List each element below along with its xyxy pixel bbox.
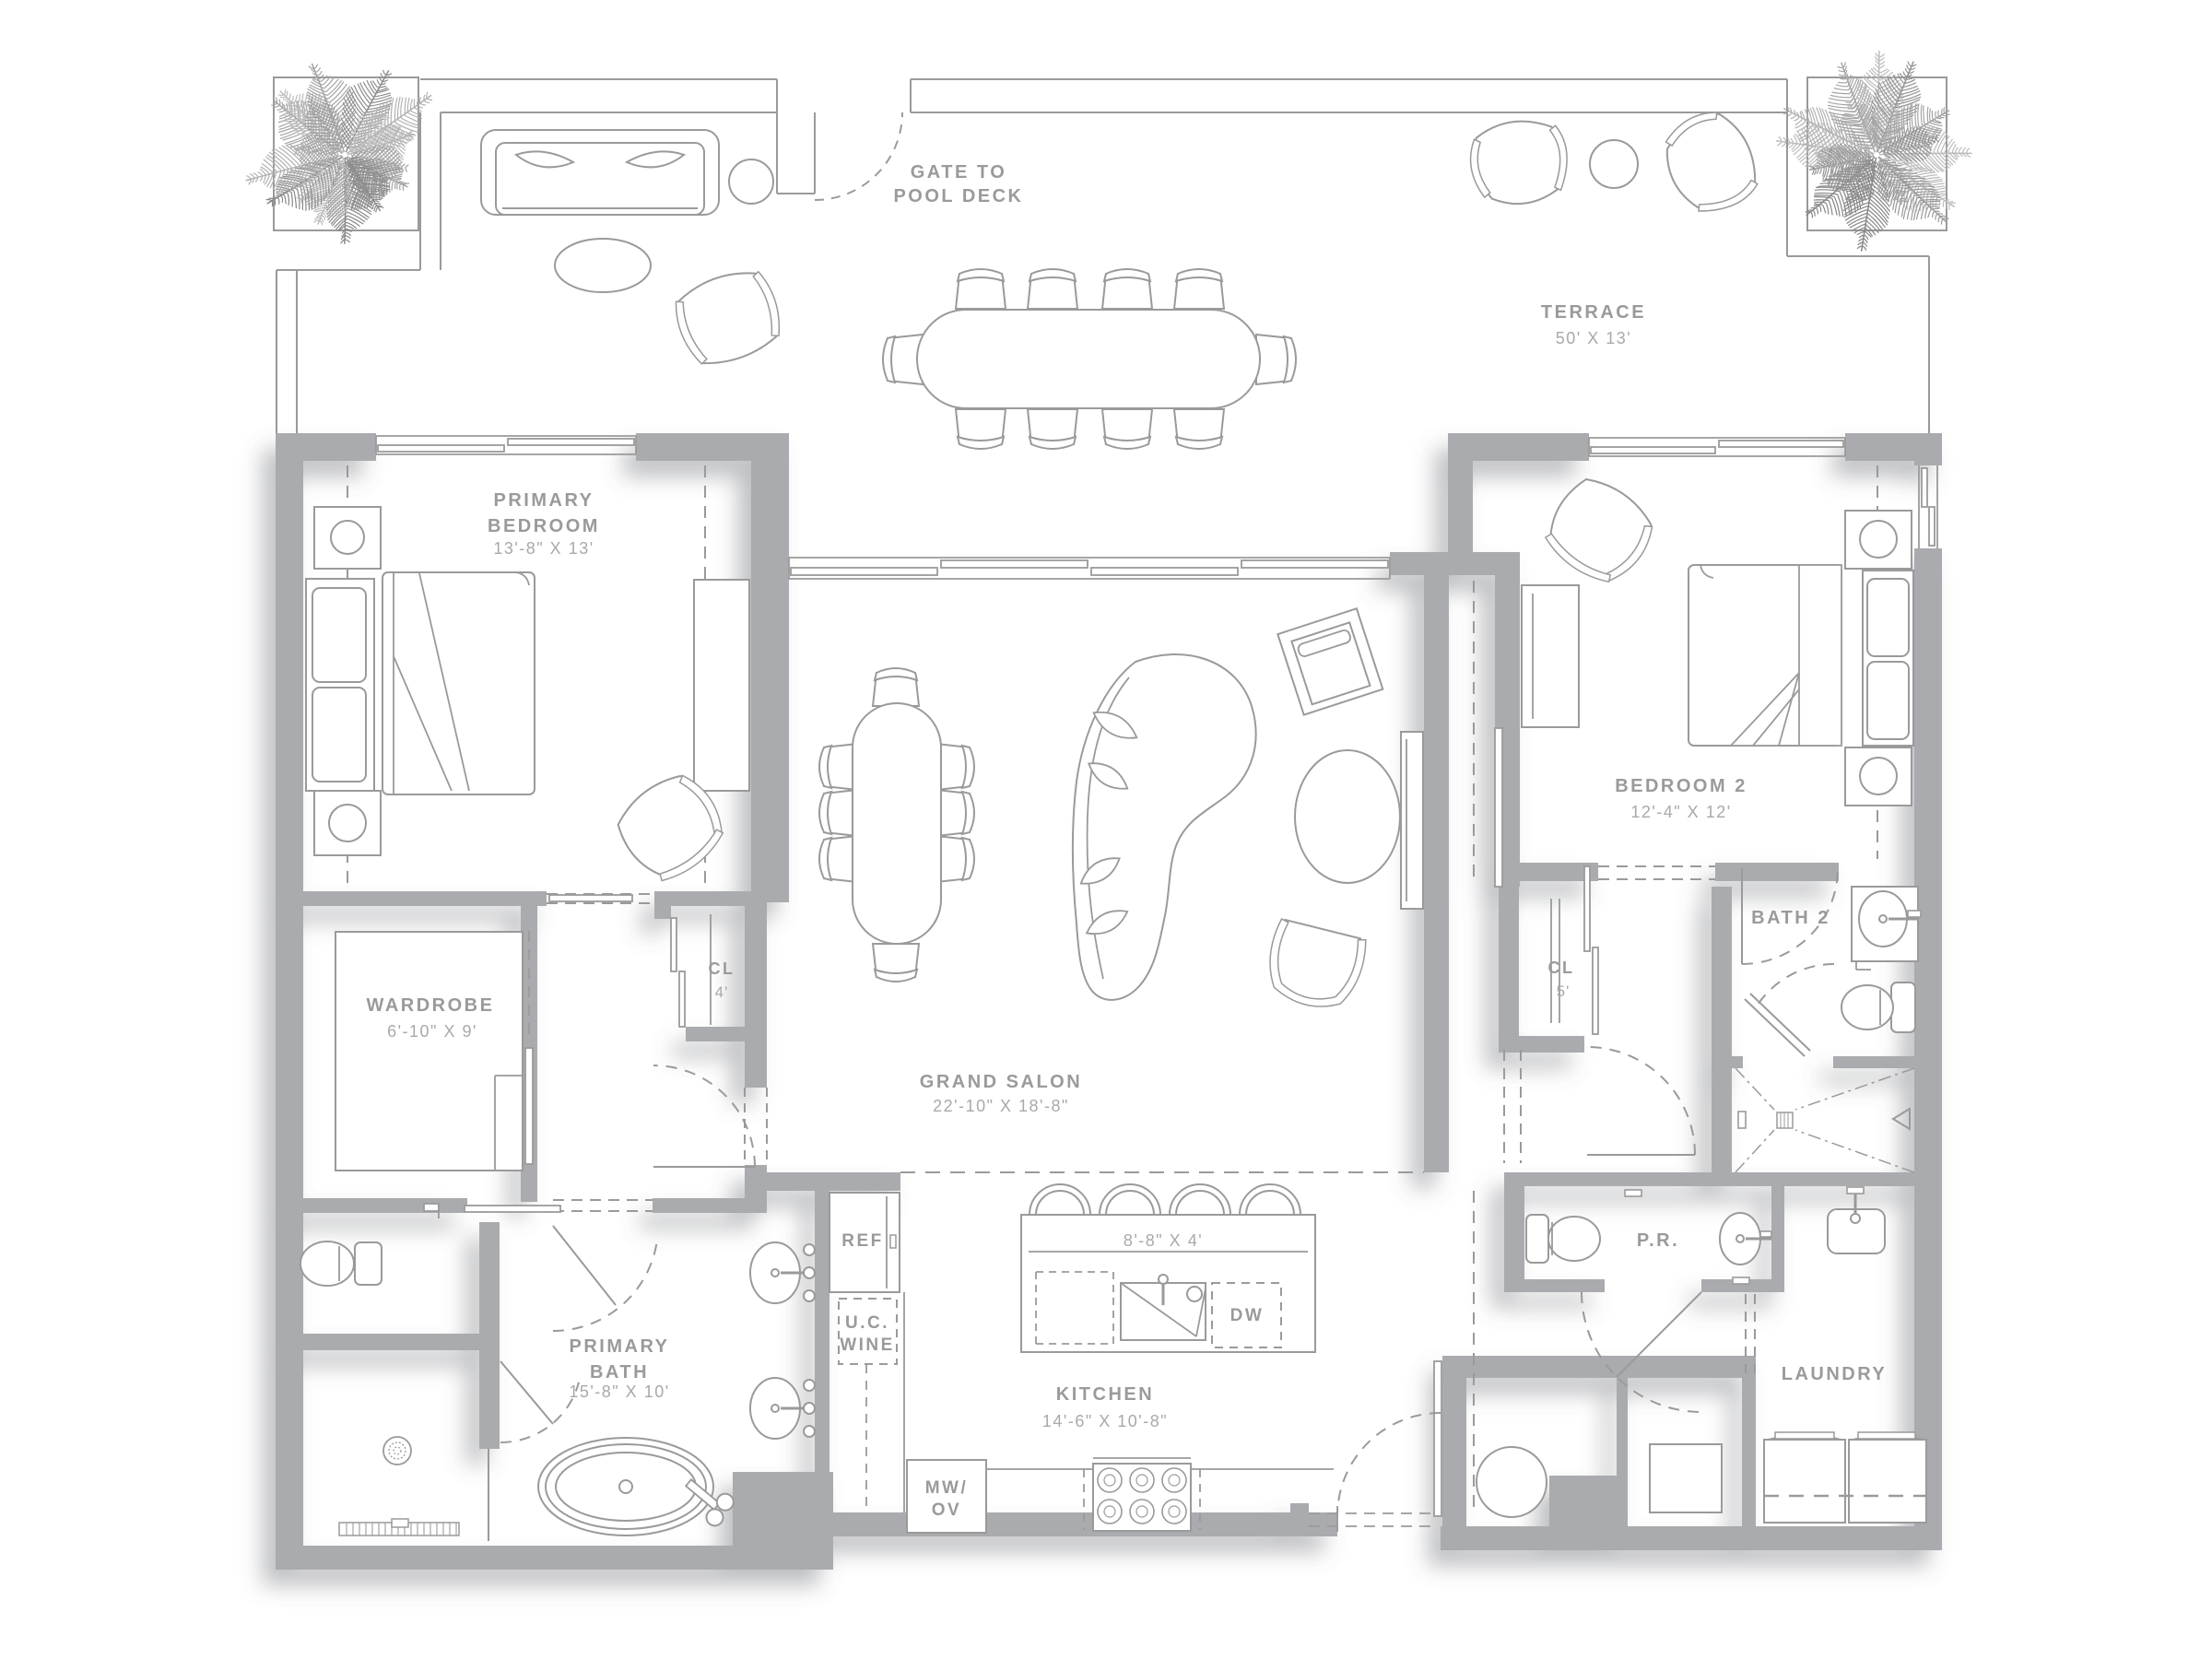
svg-text:BATH 2: BATH 2 bbox=[1751, 908, 1830, 928]
svg-text:50' X 13': 50' X 13' bbox=[1556, 329, 1631, 347]
svg-text:TERRACE: TERRACE bbox=[1541, 302, 1646, 323]
svg-text:OV: OV bbox=[932, 1500, 961, 1520]
svg-text:PRIMARY: PRIMARY bbox=[570, 1336, 670, 1357]
svg-text:14'-6" X 10'-8": 14'-6" X 10'-8" bbox=[1042, 1412, 1168, 1430]
svg-text:GRAND SALON: GRAND SALON bbox=[920, 1072, 1082, 1092]
svg-text:DW: DW bbox=[1230, 1306, 1265, 1325]
svg-text:POOL DECK: POOL DECK bbox=[893, 186, 1023, 206]
svg-text:P.R.: P.R. bbox=[1637, 1230, 1679, 1251]
svg-text:4': 4' bbox=[715, 983, 729, 1001]
svg-text:U.C.: U.C. bbox=[845, 1313, 889, 1333]
svg-text:MW/: MW/ bbox=[925, 1478, 969, 1498]
svg-text:BATH: BATH bbox=[590, 1362, 649, 1382]
svg-text:REF: REF bbox=[841, 1231, 884, 1251]
svg-text:PRIMARY: PRIMARY bbox=[494, 490, 594, 511]
svg-text:BEDROOM: BEDROOM bbox=[488, 516, 600, 536]
svg-text:22'-10" X 18'-8": 22'-10" X 18'-8" bbox=[933, 1097, 1069, 1115]
svg-text:15'-8" X 10': 15'-8" X 10' bbox=[569, 1382, 669, 1401]
svg-text:WARDROBE: WARDROBE bbox=[367, 995, 495, 1016]
svg-text:CL: CL bbox=[1548, 959, 1575, 977]
svg-text:5': 5' bbox=[1557, 982, 1571, 1000]
svg-text:BEDROOM 2: BEDROOM 2 bbox=[1615, 776, 1747, 796]
svg-text:WINE: WINE bbox=[840, 1335, 895, 1355]
svg-text:8'-8" X 4': 8'-8" X 4' bbox=[1124, 1231, 1203, 1250]
svg-text:6'-10" X 9': 6'-10" X 9' bbox=[387, 1022, 477, 1041]
svg-text:CL: CL bbox=[709, 959, 735, 978]
svg-text:KITCHEN: KITCHEN bbox=[1056, 1384, 1154, 1405]
svg-text:13'-8" X 13': 13'-8" X 13' bbox=[493, 539, 594, 558]
svg-text:LAUNDRY: LAUNDRY bbox=[1782, 1364, 1888, 1384]
svg-text:GATE TO: GATE TO bbox=[911, 162, 1007, 182]
svg-text:12'-4" X 12': 12'-4" X 12' bbox=[1630, 803, 1731, 821]
